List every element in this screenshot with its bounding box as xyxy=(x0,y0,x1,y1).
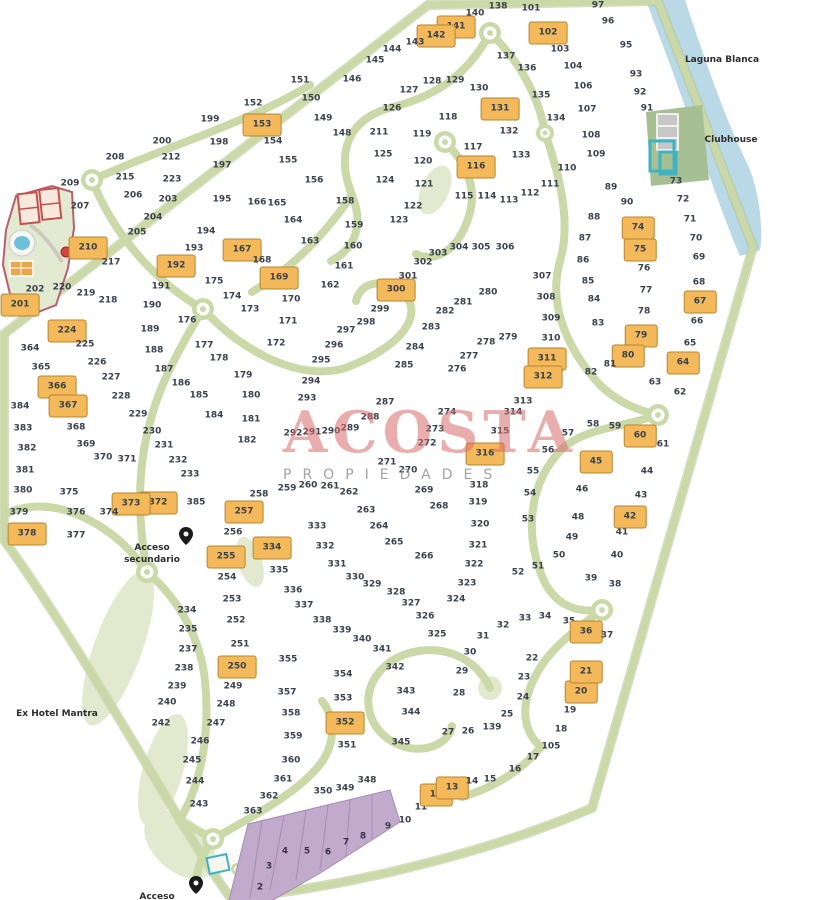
lot-65[interactable]: 65 xyxy=(684,340,697,349)
lot-278[interactable]: 278 xyxy=(477,339,496,348)
lot-270[interactable]: 270 xyxy=(399,467,418,476)
lot-259[interactable]: 259 xyxy=(278,485,297,494)
lot-381[interactable]: 381 xyxy=(16,467,35,476)
lot-272[interactable]: 272 xyxy=(418,440,437,449)
lot-384[interactable]: 384 xyxy=(11,403,30,412)
lot-2[interactable]: 2 xyxy=(257,884,263,893)
lot-4[interactable]: 4 xyxy=(282,848,288,857)
lot-202[interactable]: 202 xyxy=(26,286,45,295)
lot-368[interactable]: 368 xyxy=(67,424,86,433)
lot-294[interactable]: 294 xyxy=(302,378,321,387)
lot-131[interactable]: 131 xyxy=(481,98,520,121)
lot-176[interactable]: 176 xyxy=(178,317,197,326)
lot-314[interactable]: 314 xyxy=(504,409,523,418)
lot-261[interactable]: 261 xyxy=(321,483,340,492)
lot-45[interactable]: 45 xyxy=(580,451,613,474)
lot-76[interactable]: 76 xyxy=(638,265,651,274)
lot-18[interactable]: 18 xyxy=(555,726,568,735)
lot-30[interactable]: 30 xyxy=(464,649,477,658)
lot-353[interactable]: 353 xyxy=(334,695,353,704)
lot-290[interactable]: 290 xyxy=(322,428,341,437)
lot-219[interactable]: 219 xyxy=(77,290,96,299)
lot-150[interactable]: 150 xyxy=(302,95,321,104)
lot-6[interactable]: 6 xyxy=(325,849,331,858)
lot-180[interactable]: 180 xyxy=(242,392,261,401)
lot-19[interactable]: 19 xyxy=(564,707,577,716)
lot-43[interactable]: 43 xyxy=(635,492,648,501)
lot-351[interactable]: 351 xyxy=(338,742,357,751)
lot-283[interactable]: 283 xyxy=(422,324,441,333)
lot-134[interactable]: 134 xyxy=(547,115,566,124)
lot-229[interactable]: 229 xyxy=(129,411,148,420)
lot-256[interactable]: 256 xyxy=(224,529,243,538)
lot-46[interactable]: 46 xyxy=(576,486,589,495)
lot-114[interactable]: 114 xyxy=(478,193,497,202)
lot-378[interactable]: 378 xyxy=(8,523,47,546)
lot-369[interactable]: 369 xyxy=(77,441,96,450)
lot-276[interactable]: 276 xyxy=(448,366,467,375)
lot-258[interactable]: 258 xyxy=(250,491,269,500)
lot-287[interactable]: 287 xyxy=(376,399,395,408)
lot-264[interactable]: 264 xyxy=(370,523,389,532)
lot-297[interactable]: 297 xyxy=(337,327,356,336)
lot-64[interactable]: 64 xyxy=(667,352,700,375)
lot-273[interactable]: 273 xyxy=(426,426,445,435)
lot-344[interactable]: 344 xyxy=(402,709,421,718)
lot-7[interactable]: 7 xyxy=(343,839,349,848)
lot-75[interactable]: 75 xyxy=(624,239,657,262)
lot-118[interactable]: 118 xyxy=(439,114,458,123)
lot-27[interactable]: 27 xyxy=(442,729,455,738)
lot-298[interactable]: 298 xyxy=(357,319,376,328)
lot-203[interactable]: 203 xyxy=(159,196,178,205)
lot-136[interactable]: 136 xyxy=(518,65,537,74)
lot-105[interactable]: 105 xyxy=(542,743,561,752)
lot-184[interactable]: 184 xyxy=(205,412,224,421)
lot-288[interactable]: 288 xyxy=(361,414,380,423)
lot-130[interactable]: 130 xyxy=(470,85,489,94)
lot-309[interactable]: 309 xyxy=(542,315,561,324)
lot-117[interactable]: 117 xyxy=(464,144,483,153)
lot-335[interactable]: 335 xyxy=(270,567,289,576)
lot-361[interactable]: 361 xyxy=(274,776,293,785)
lot-182[interactable]: 182 xyxy=(238,437,257,446)
lot-382[interactable]: 382 xyxy=(18,445,37,454)
lot-318[interactable]: 318 xyxy=(470,482,489,491)
lot-146[interactable]: 146 xyxy=(343,76,362,85)
lot-169[interactable]: 169 xyxy=(260,267,299,290)
lot-339[interactable]: 339 xyxy=(333,627,352,636)
lot-70[interactable]: 70 xyxy=(690,235,703,244)
lot-334[interactable]: 334 xyxy=(253,537,292,560)
lot-33[interactable]: 33 xyxy=(519,615,532,624)
lot-104[interactable]: 104 xyxy=(564,63,583,72)
lot-292[interactable]: 292 xyxy=(284,430,303,439)
lot-303[interactable]: 303 xyxy=(429,250,448,259)
lot-227[interactable]: 227 xyxy=(102,374,121,383)
lot-81[interactable]: 81 xyxy=(604,361,617,370)
lot-22[interactable]: 22 xyxy=(526,655,539,664)
lot-252[interactable]: 252 xyxy=(227,617,246,626)
lot-333[interactable]: 333 xyxy=(308,523,327,532)
lot-160[interactable]: 160 xyxy=(344,243,363,252)
lot-254[interactable]: 254 xyxy=(218,574,237,583)
lot-115[interactable]: 115 xyxy=(455,193,474,202)
lot-37[interactable]: 37 xyxy=(601,632,614,641)
lot-341[interactable]: 341 xyxy=(373,646,392,655)
lot-231[interactable]: 231 xyxy=(155,442,174,451)
lot-293[interactable]: 293 xyxy=(298,395,317,404)
lot-244[interactable]: 244 xyxy=(186,778,205,787)
lot-29[interactable]: 29 xyxy=(456,668,469,677)
lot-281[interactable]: 281 xyxy=(454,299,473,308)
lot-240[interactable]: 240 xyxy=(158,699,177,708)
lot-322[interactable]: 322 xyxy=(465,561,484,570)
lot-137[interactable]: 137 xyxy=(497,53,516,62)
lot-325[interactable]: 325 xyxy=(428,631,447,640)
lot-193[interactable]: 193 xyxy=(185,245,204,254)
lot-168[interactable]: 168 xyxy=(253,257,272,266)
lot-247[interactable]: 247 xyxy=(207,720,226,729)
lot-367[interactable]: 367 xyxy=(49,395,88,418)
lot-370[interactable]: 370 xyxy=(94,454,113,463)
lot-315[interactable]: 315 xyxy=(491,428,510,437)
lot-72[interactable]: 72 xyxy=(677,196,690,205)
lot-316[interactable]: 316 xyxy=(466,443,505,466)
lot-97[interactable]: 97 xyxy=(592,2,605,11)
lot-68[interactable]: 68 xyxy=(693,279,706,288)
lot-60[interactable]: 60 xyxy=(624,425,657,448)
lot-166[interactable]: 166 xyxy=(248,199,267,208)
lot-69[interactable]: 69 xyxy=(693,254,706,263)
lot-55[interactable]: 55 xyxy=(527,468,540,477)
lot-266[interactable]: 266 xyxy=(415,553,434,562)
lot-178[interactable]: 178 xyxy=(210,355,229,364)
lot-172[interactable]: 172 xyxy=(267,340,286,349)
lot-245[interactable]: 245 xyxy=(183,757,202,766)
lot-248[interactable]: 248 xyxy=(217,701,236,710)
lot-71[interactable]: 71 xyxy=(684,216,697,225)
lot-371[interactable]: 371 xyxy=(118,456,137,465)
lot-66[interactable]: 66 xyxy=(691,318,704,327)
lot-34[interactable]: 34 xyxy=(539,613,552,622)
lot-132[interactable]: 132 xyxy=(500,128,519,137)
lot-161[interactable]: 161 xyxy=(335,263,354,272)
lot-343[interactable]: 343 xyxy=(397,688,416,697)
lot-52[interactable]: 52 xyxy=(512,569,525,578)
lot-200[interactable]: 200 xyxy=(153,138,172,147)
lot-208[interactable]: 208 xyxy=(106,154,125,163)
lot-67[interactable]: 67 xyxy=(684,291,717,314)
lot-243[interactable]: 243 xyxy=(190,801,209,810)
lot-62[interactable]: 62 xyxy=(674,389,687,398)
lot-39[interactable]: 39 xyxy=(585,575,598,584)
lot-190[interactable]: 190 xyxy=(143,302,162,311)
lot-194[interactable]: 194 xyxy=(197,228,216,237)
lot-250[interactable]: 250 xyxy=(218,656,257,679)
lot-365[interactable]: 365 xyxy=(32,364,51,373)
lot-376[interactable]: 376 xyxy=(67,509,86,518)
lot-232[interactable]: 232 xyxy=(169,457,188,466)
lot-326[interactable]: 326 xyxy=(416,613,435,622)
lot-277[interactable]: 277 xyxy=(460,353,479,362)
lot-195[interactable]: 195 xyxy=(213,196,232,205)
lot-336[interactable]: 336 xyxy=(284,587,303,596)
lot-110[interactable]: 110 xyxy=(558,165,577,174)
lot-226[interactable]: 226 xyxy=(88,359,107,368)
lot-320[interactable]: 320 xyxy=(471,521,490,530)
lot-329[interactable]: 329 xyxy=(363,581,382,590)
lot-41[interactable]: 41 xyxy=(616,529,629,538)
lot-237[interactable]: 237 xyxy=(179,646,198,655)
lot-73[interactable]: 73 xyxy=(670,178,683,187)
lot-355[interactable]: 355 xyxy=(279,656,298,665)
lot-230[interactable]: 230 xyxy=(143,428,162,437)
lot-119[interactable]: 119 xyxy=(413,131,432,140)
lot-185[interactable]: 185 xyxy=(190,392,209,401)
lot-48[interactable]: 48 xyxy=(572,514,585,523)
lot-86[interactable]: 86 xyxy=(577,257,590,266)
lot-112[interactable]: 112 xyxy=(521,190,540,199)
lot-162[interactable]: 162 xyxy=(321,282,340,291)
lot-204[interactable]: 204 xyxy=(144,214,163,223)
lot-308[interactable]: 308 xyxy=(537,294,556,303)
lot-148[interactable]: 148 xyxy=(333,130,352,139)
lot-129[interactable]: 129 xyxy=(446,77,465,86)
lot-108[interactable]: 108 xyxy=(582,132,601,141)
lot-295[interactable]: 295 xyxy=(312,357,331,366)
lot-191[interactable]: 191 xyxy=(152,283,171,292)
lot-263[interactable]: 263 xyxy=(357,507,376,516)
lot-90[interactable]: 90 xyxy=(621,199,634,208)
lot-177[interactable]: 177 xyxy=(195,342,214,351)
lot-113[interactable]: 113 xyxy=(500,197,519,206)
lot-174[interactable]: 174 xyxy=(223,293,242,302)
lot-323[interactable]: 323 xyxy=(458,580,477,589)
lot-223[interactable]: 223 xyxy=(163,176,182,185)
lot-111[interactable]: 111 xyxy=(541,181,560,190)
lot-103[interactable]: 103 xyxy=(551,46,570,55)
lot-149[interactable]: 149 xyxy=(314,115,333,124)
lot-363[interactable]: 363 xyxy=(244,808,263,817)
lot-92[interactable]: 92 xyxy=(634,89,647,98)
lot-143[interactable]: 143 xyxy=(406,39,425,48)
lot-197[interactable]: 197 xyxy=(213,162,232,171)
lot-123[interactable]: 123 xyxy=(390,217,409,226)
lot-125[interactable]: 125 xyxy=(374,151,393,160)
lot-207[interactable]: 207 xyxy=(71,203,90,212)
lot-88[interactable]: 88 xyxy=(588,214,601,223)
lot-217[interactable]: 217 xyxy=(102,259,121,268)
lot-362[interactable]: 362 xyxy=(260,793,279,802)
lot-268[interactable]: 268 xyxy=(430,503,449,512)
lot-83[interactable]: 83 xyxy=(592,320,605,329)
lot-5[interactable]: 5 xyxy=(304,848,310,857)
lot-357[interactable]: 357 xyxy=(278,689,297,698)
lot-265[interactable]: 265 xyxy=(385,539,404,548)
lot-153[interactable]: 153 xyxy=(243,114,282,137)
lot-350[interactable]: 350 xyxy=(314,788,333,797)
lot-116[interactable]: 116 xyxy=(457,156,496,179)
lot-201[interactable]: 201 xyxy=(1,294,40,317)
lot-179[interactable]: 179 xyxy=(234,372,253,381)
lot-122[interactable]: 122 xyxy=(404,203,423,212)
lot-36[interactable]: 36 xyxy=(570,621,603,644)
lot-358[interactable]: 358 xyxy=(282,710,301,719)
lot-310[interactable]: 310 xyxy=(542,335,561,344)
lot-121[interactable]: 121 xyxy=(415,181,434,190)
lot-138[interactable]: 138 xyxy=(489,3,508,12)
lot-109[interactable]: 109 xyxy=(587,151,606,160)
lot-61[interactable]: 61 xyxy=(657,441,670,450)
lot-209[interactable]: 209 xyxy=(61,180,80,189)
lot-377[interactable]: 377 xyxy=(67,532,86,541)
lot-282[interactable]: 282 xyxy=(436,308,455,317)
lot-385[interactable]: 385 xyxy=(187,499,206,508)
lot-106[interactable]: 106 xyxy=(574,83,593,92)
lot-175[interactable]: 175 xyxy=(205,278,224,287)
lot-96[interactable]: 96 xyxy=(602,18,615,27)
lot-291[interactable]: 291 xyxy=(303,429,322,438)
lot-242[interactable]: 242 xyxy=(152,720,171,729)
lot-135[interactable]: 135 xyxy=(532,92,551,101)
lot-348[interactable]: 348 xyxy=(358,777,377,786)
lot-32[interactable]: 32 xyxy=(497,622,510,631)
lot-349[interactable]: 349 xyxy=(336,785,355,794)
lot-56[interactable]: 56 xyxy=(542,447,555,456)
lot-165[interactable]: 165 xyxy=(268,200,287,209)
lot-120[interactable]: 120 xyxy=(414,158,433,167)
lot-186[interactable]: 186 xyxy=(172,380,191,389)
lot-80[interactable]: 80 xyxy=(612,345,645,368)
lot-218[interactable]: 218 xyxy=(99,297,118,306)
lot-279[interactable]: 279 xyxy=(499,334,518,343)
lot-42[interactable]: 42 xyxy=(614,506,647,529)
lot-102[interactable]: 102 xyxy=(529,22,568,45)
lot-28[interactable]: 28 xyxy=(453,690,466,699)
lot-198[interactable]: 198 xyxy=(210,139,229,148)
lot-40[interactable]: 40 xyxy=(611,552,624,561)
lot-246[interactable]: 246 xyxy=(191,738,210,747)
lot-249[interactable]: 249 xyxy=(224,683,243,692)
lot-126[interactable]: 126 xyxy=(383,105,402,114)
lot-91[interactable]: 91 xyxy=(641,105,654,114)
lot-199[interactable]: 199 xyxy=(201,116,220,125)
lot-9[interactable]: 9 xyxy=(385,823,391,832)
lot-319[interactable]: 319 xyxy=(469,499,488,508)
lot-145[interactable]: 145 xyxy=(366,57,385,66)
lot-57[interactable]: 57 xyxy=(562,430,575,439)
lot-164[interactable]: 164 xyxy=(284,217,303,226)
lot-49[interactable]: 49 xyxy=(566,534,579,543)
lot-305[interactable]: 305 xyxy=(472,244,491,253)
lot-328[interactable]: 328 xyxy=(387,589,406,598)
lot-262[interactable]: 262 xyxy=(340,489,359,498)
lot-156[interactable]: 156 xyxy=(305,177,324,186)
lot-338[interactable]: 338 xyxy=(313,617,332,626)
lot-302[interactable]: 302 xyxy=(414,259,433,268)
lot-233[interactable]: 233 xyxy=(181,471,200,480)
lot-251[interactable]: 251 xyxy=(231,641,250,650)
lot-84[interactable]: 84 xyxy=(588,296,601,305)
lot-375[interactable]: 375 xyxy=(60,489,79,498)
lot-21[interactable]: 21 xyxy=(570,661,603,684)
lot-192[interactable]: 192 xyxy=(157,255,196,278)
lot-82[interactable]: 82 xyxy=(585,369,598,378)
lot-312[interactable]: 312 xyxy=(524,366,563,389)
lot-38[interactable]: 38 xyxy=(609,581,622,590)
lot-158[interactable]: 158 xyxy=(336,198,355,207)
lot-14[interactable]: 14 xyxy=(466,778,479,787)
lot-171[interactable]: 171 xyxy=(279,318,298,327)
lot-271[interactable]: 271 xyxy=(378,459,397,468)
lot-151[interactable]: 151 xyxy=(291,77,310,86)
lot-25[interactable]: 25 xyxy=(501,711,514,720)
lot-63[interactable]: 63 xyxy=(649,379,662,388)
lot-296[interactable]: 296 xyxy=(325,342,344,351)
lot-332[interactable]: 332 xyxy=(316,543,335,552)
lot-313[interactable]: 313 xyxy=(514,398,533,407)
lot-24[interactable]: 24 xyxy=(517,694,530,703)
lot-238[interactable]: 238 xyxy=(175,665,194,674)
lot-269[interactable]: 269 xyxy=(415,487,434,496)
lot-13[interactable]: 13 xyxy=(436,777,469,800)
lot-212[interactable]: 212 xyxy=(162,154,181,163)
lot-285[interactable]: 285 xyxy=(395,362,414,371)
lot-210[interactable]: 210 xyxy=(69,237,108,260)
lot-170[interactable]: 170 xyxy=(282,296,301,305)
lot-54[interactable]: 54 xyxy=(524,490,537,499)
lot-289[interactable]: 289 xyxy=(341,425,360,434)
lot-337[interactable]: 337 xyxy=(295,602,314,611)
lot-352[interactable]: 352 xyxy=(326,712,365,735)
lot-181[interactable]: 181 xyxy=(242,416,261,425)
lot-74[interactable]: 74 xyxy=(622,217,655,240)
lot-211[interactable]: 211 xyxy=(370,129,389,138)
lot-379[interactable]: 379 xyxy=(10,509,29,518)
lot-255[interactable]: 255 xyxy=(207,546,246,569)
lot-260[interactable]: 260 xyxy=(299,482,318,491)
lot-327[interactable]: 327 xyxy=(402,600,421,609)
lot-257[interactable]: 257 xyxy=(225,501,264,524)
lot-95[interactable]: 95 xyxy=(620,42,633,51)
lot-85[interactable]: 85 xyxy=(582,278,595,287)
lot-107[interactable]: 107 xyxy=(578,106,597,115)
lot-330[interactable]: 330 xyxy=(346,574,365,583)
lot-364[interactable]: 364 xyxy=(21,345,40,354)
lot-324[interactable]: 324 xyxy=(447,596,466,605)
lot-154[interactable]: 154 xyxy=(264,138,283,147)
lot-50[interactable]: 50 xyxy=(553,552,566,561)
lot-321[interactable]: 321 xyxy=(469,542,488,551)
lot-15[interactable]: 15 xyxy=(484,776,497,785)
lot-16[interactable]: 16 xyxy=(509,766,522,775)
lot-239[interactable]: 239 xyxy=(168,683,187,692)
lot-128[interactable]: 128 xyxy=(423,78,442,87)
lot-345[interactable]: 345 xyxy=(392,739,411,748)
lot-89[interactable]: 89 xyxy=(605,184,618,193)
lot-228[interactable]: 228 xyxy=(112,393,131,402)
lot-187[interactable]: 187 xyxy=(155,366,174,375)
lot-127[interactable]: 127 xyxy=(400,87,419,96)
lot-23[interactable]: 23 xyxy=(518,674,531,683)
lot-235[interactable]: 235 xyxy=(179,626,198,635)
lot-359[interactable]: 359 xyxy=(284,733,303,742)
lot-206[interactable]: 206 xyxy=(124,192,143,201)
lot-215[interactable]: 215 xyxy=(116,174,135,183)
lot-155[interactable]: 155 xyxy=(279,157,298,166)
lot-234[interactable]: 234 xyxy=(178,607,197,616)
